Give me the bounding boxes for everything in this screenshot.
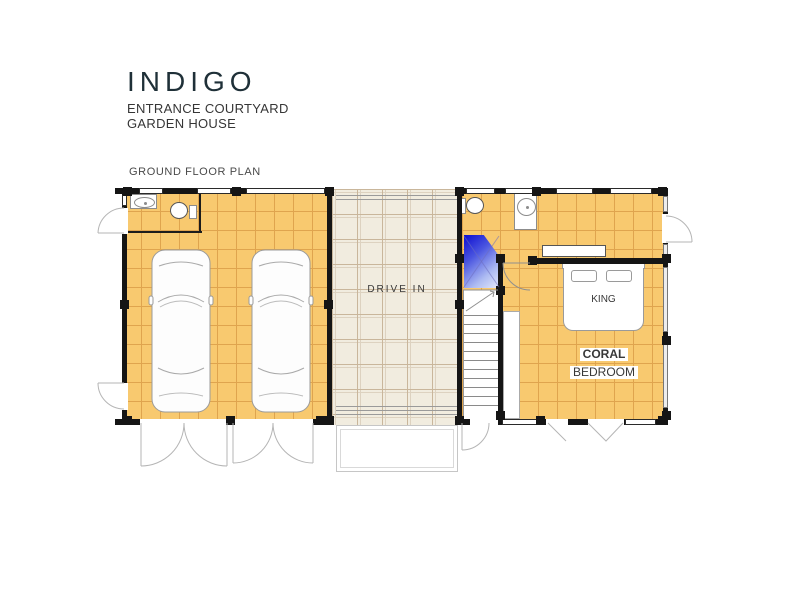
window (663, 344, 668, 408)
column (662, 411, 671, 420)
window (466, 188, 495, 194)
column (536, 416, 545, 425)
column (325, 187, 334, 196)
pillow (571, 270, 597, 282)
column (662, 254, 671, 263)
wall (528, 258, 666, 264)
king-bed: KING (562, 262, 645, 331)
door-opening (588, 419, 624, 426)
column (324, 300, 333, 309)
drive-in-label: DRIVE IN (352, 284, 442, 295)
wall (498, 257, 503, 425)
column (532, 187, 541, 196)
door-arc (666, 216, 692, 242)
drive-gate-top (336, 195, 458, 203)
floor-plan: KING (0, 0, 800, 600)
toilet-icon (170, 202, 188, 219)
window (139, 188, 163, 194)
staircase (463, 290, 499, 420)
window (122, 195, 127, 206)
column (496, 286, 505, 295)
window (502, 419, 539, 425)
column (662, 336, 671, 345)
door-opening (233, 419, 313, 426)
bedroom-name-line1: CORAL (580, 348, 629, 361)
door-arc (462, 423, 489, 450)
window (556, 188, 593, 194)
drive-in-floor (332, 189, 458, 425)
column (123, 416, 132, 425)
column (455, 300, 464, 309)
column (120, 300, 129, 309)
door-opening (662, 214, 669, 243)
window (663, 267, 668, 332)
washroom-wall (122, 231, 202, 233)
column (496, 411, 505, 420)
door-arc (141, 423, 184, 466)
door-opening (470, 419, 498, 426)
window (610, 188, 652, 194)
car-icon (248, 246, 314, 416)
sink-icon (130, 194, 157, 209)
pillow (606, 270, 632, 282)
column (658, 187, 667, 196)
window (246, 188, 325, 194)
bedroom-label: CORAL BEDROOM (560, 345, 648, 381)
door-opening (121, 208, 128, 234)
column (226, 416, 235, 425)
door-opening (140, 419, 227, 426)
column (528, 256, 537, 265)
closet (542, 245, 606, 257)
driveway-apron (336, 425, 458, 472)
sink-icon (514, 193, 537, 230)
window (625, 419, 656, 425)
sink-basin (517, 198, 536, 216)
door-arc (184, 423, 227, 466)
toilet-icon (466, 197, 484, 214)
stair-treads (464, 315, 498, 412)
door-arc (233, 423, 273, 463)
sink-basin (134, 197, 155, 208)
window (197, 188, 231, 194)
column (325, 416, 334, 425)
window (663, 196, 668, 212)
column (455, 187, 464, 196)
bed-label: KING (591, 294, 615, 305)
door-opening (546, 419, 568, 426)
column (232, 187, 241, 196)
door-opening (121, 383, 128, 410)
column (496, 254, 505, 263)
door-arc (273, 423, 313, 463)
washroom-wall (199, 189, 201, 233)
window (505, 188, 534, 194)
wardrobe (503, 311, 520, 419)
bedroom-name-line2: BEDROOM (570, 366, 638, 379)
column (316, 416, 325, 425)
column (455, 254, 464, 263)
drive-gate-bottom (336, 406, 458, 418)
column (455, 416, 464, 425)
car-icon (148, 246, 214, 416)
toilet-tank-icon (189, 205, 197, 219)
column (123, 187, 132, 196)
